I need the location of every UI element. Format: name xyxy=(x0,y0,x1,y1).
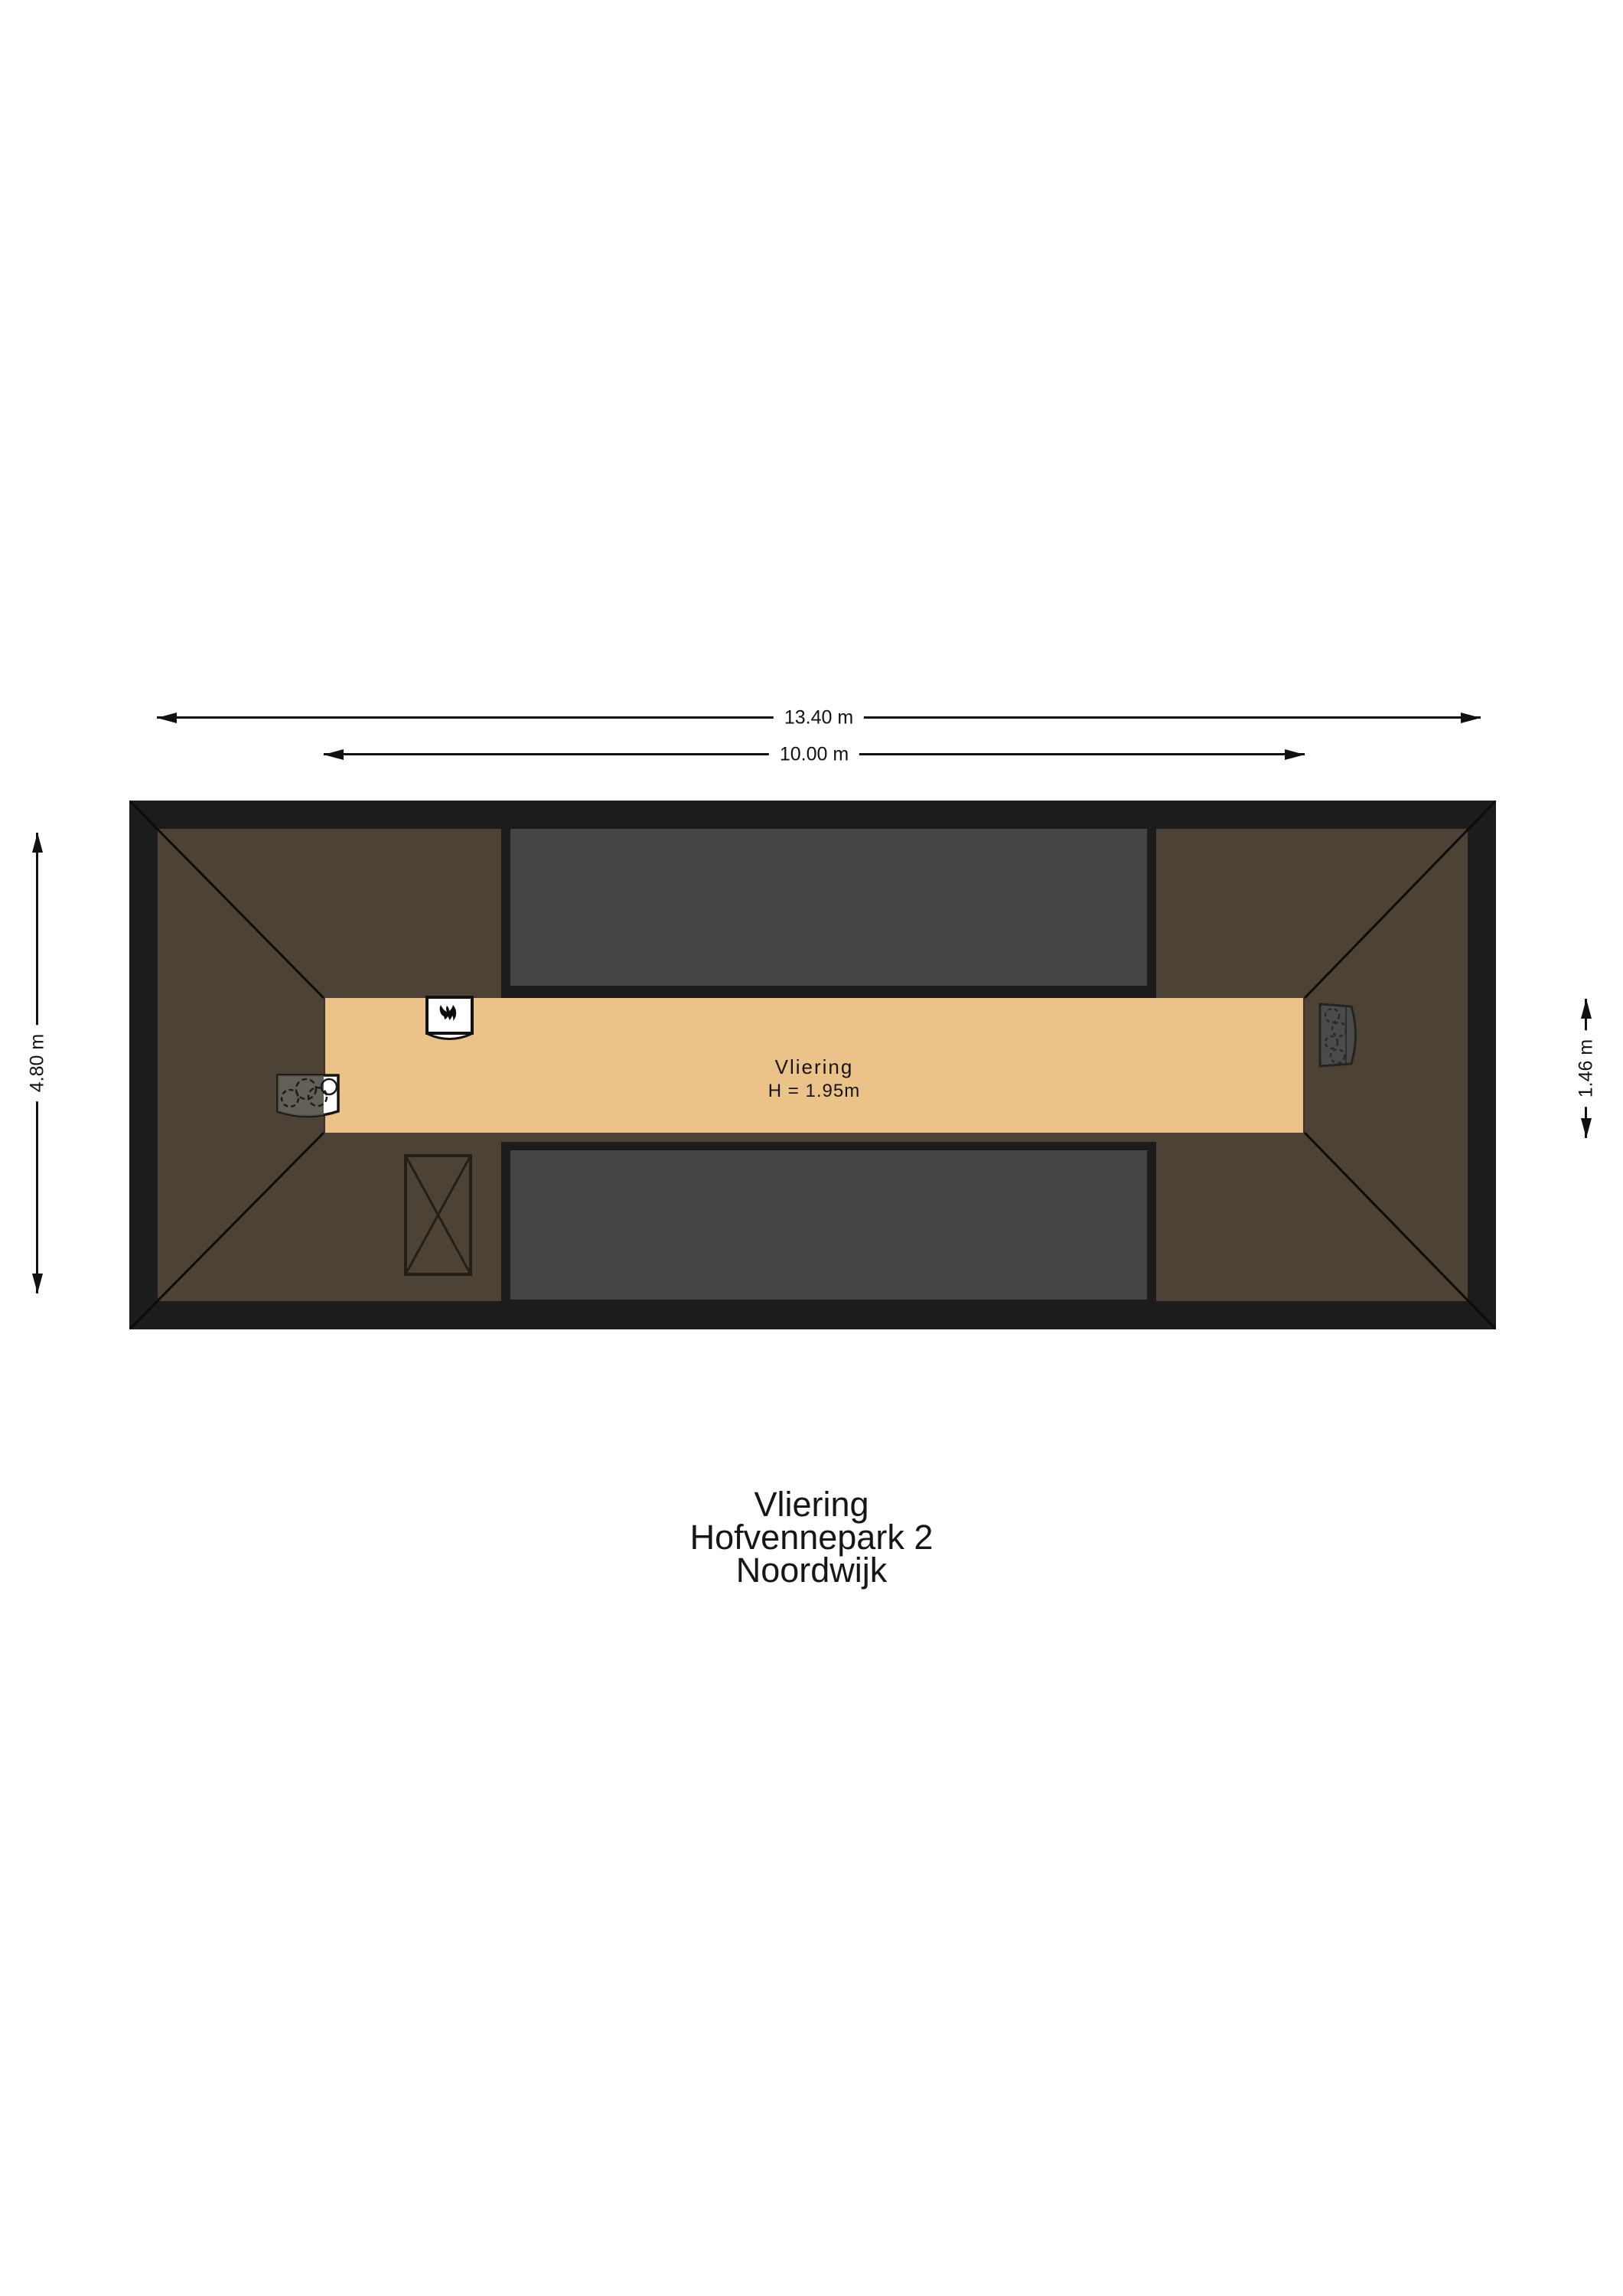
dimension-overall-depth-label: 4.80 m xyxy=(26,1025,48,1101)
vent-unit-icon xyxy=(1320,1004,1356,1066)
title-city: Noordwijk xyxy=(0,1554,1623,1587)
arrow-down-icon xyxy=(1581,1118,1592,1138)
title-block: Vliering Hofvennepark 2 Noordwijk xyxy=(0,1488,1623,1587)
arrow-down-icon xyxy=(32,1274,43,1293)
dimension-floor-depth: 1.46 m xyxy=(1585,999,1587,1138)
room-height-label: H = 1.95m xyxy=(324,1081,1305,1102)
dimension-floor-width: 10.00 m xyxy=(324,753,1305,755)
arrow-left-icon xyxy=(324,749,344,760)
roof-void-top xyxy=(510,829,1147,986)
boiler-flame-icon xyxy=(427,997,472,1039)
dimension-overall-depth: 4.80 m xyxy=(36,833,38,1293)
dimension-floor-width-label: 10.00 m xyxy=(769,743,859,765)
floorplan-page: 13.40 m 10.00 m 4.80 m 1.46 m xyxy=(0,0,1623,2296)
title-address: Hofvennepark 2 xyxy=(0,1521,1623,1554)
dimension-floor-depth-label: 1.46 m xyxy=(1575,1030,1597,1107)
arrow-right-icon xyxy=(1285,749,1305,760)
arrow-right-icon xyxy=(1461,713,1481,723)
arrow-left-icon xyxy=(157,713,177,723)
room-name-label: Vliering xyxy=(324,1055,1305,1079)
dimension-overall-width-label: 13.40 m xyxy=(774,706,864,729)
roof-void-bottom xyxy=(510,1150,1147,1300)
arrow-up-icon xyxy=(1581,999,1592,1019)
arrow-up-icon xyxy=(32,833,43,853)
dimension-overall-width: 13.40 m xyxy=(157,716,1481,719)
title-room: Vliering xyxy=(0,1488,1623,1521)
